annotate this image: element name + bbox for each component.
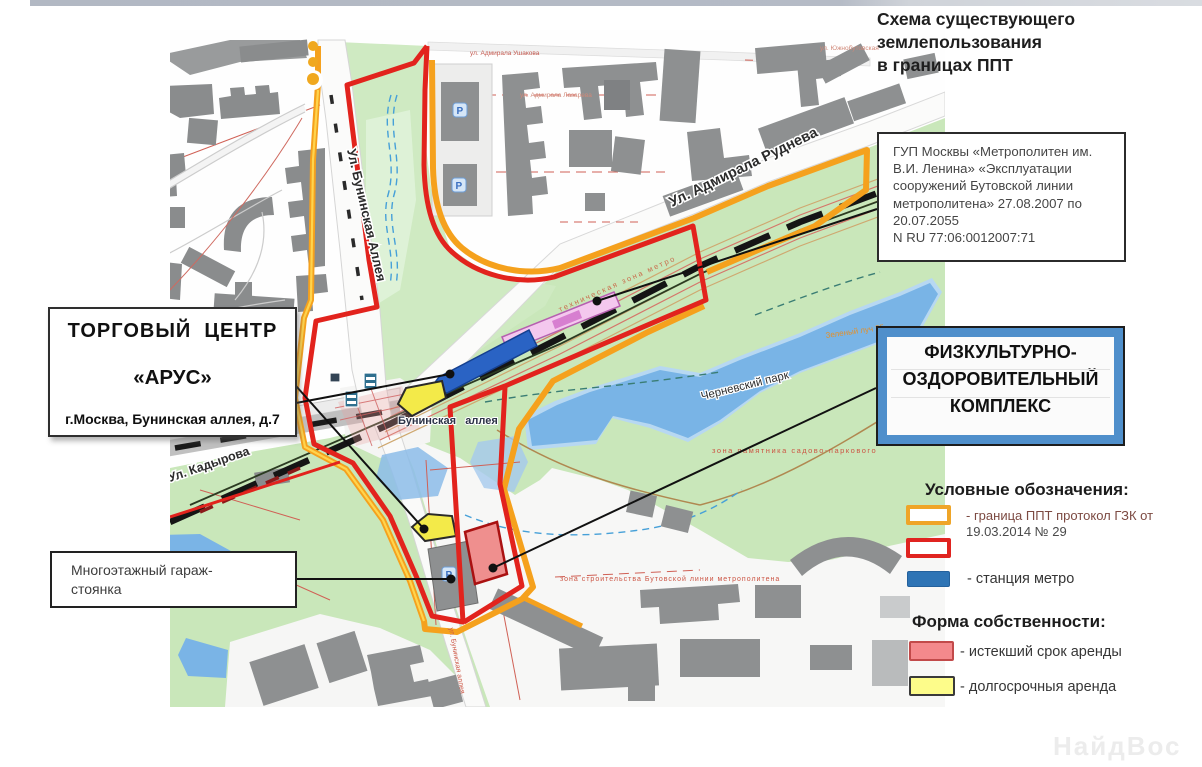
svg-text:ул. Адмирала Ушакова: ул. Адмирала Ушакова bbox=[470, 50, 540, 57]
svg-text:P: P bbox=[457, 106, 464, 117]
svg-text:зона строительства Бутовской л: зона строительства Бутовской линии метро… bbox=[560, 575, 780, 583]
svg-text:P: P bbox=[456, 181, 463, 192]
svg-text:Бунинская аллея: Бунинская аллея bbox=[398, 415, 498, 427]
svg-text:ул. Адмирала Лазарева: ул. Адмирала Лазарева bbox=[520, 92, 592, 99]
svg-text:ул. Южнобутовская: ул. Южнобутовская bbox=[820, 44, 879, 52]
